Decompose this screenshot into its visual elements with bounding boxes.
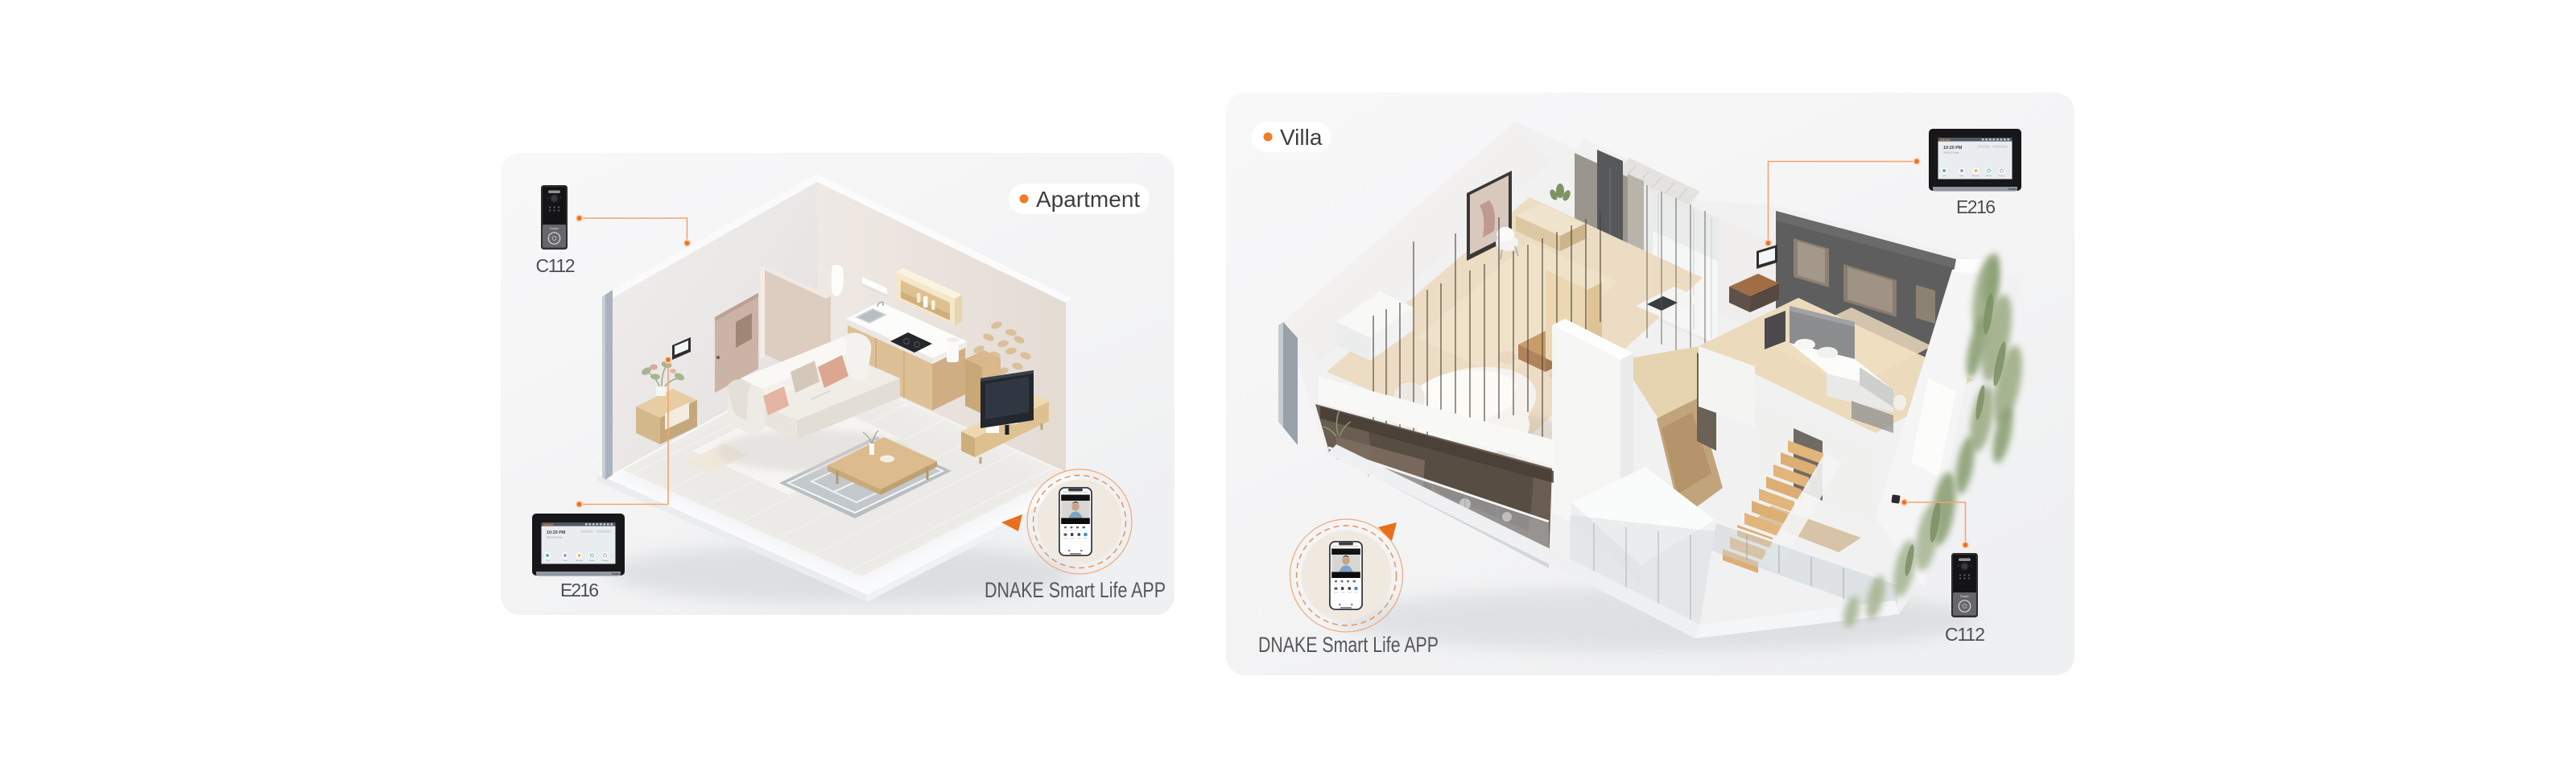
svg-text:E216: E216 [1956,196,1996,217]
svg-text:E216: E216 [560,580,599,600]
svg-text:C112: C112 [536,255,576,276]
svg-text:Villa: Villa [1280,125,1323,150]
svg-text:Apartment: Apartment [1036,187,1140,212]
svg-text:DNAKE Smart Life APP: DNAKE Smart Life APP [985,578,1166,602]
svg-text:DNAKE Smart Life APP: DNAKE Smart Life APP [1258,633,1439,657]
svg-text:C112: C112 [1945,624,1985,645]
